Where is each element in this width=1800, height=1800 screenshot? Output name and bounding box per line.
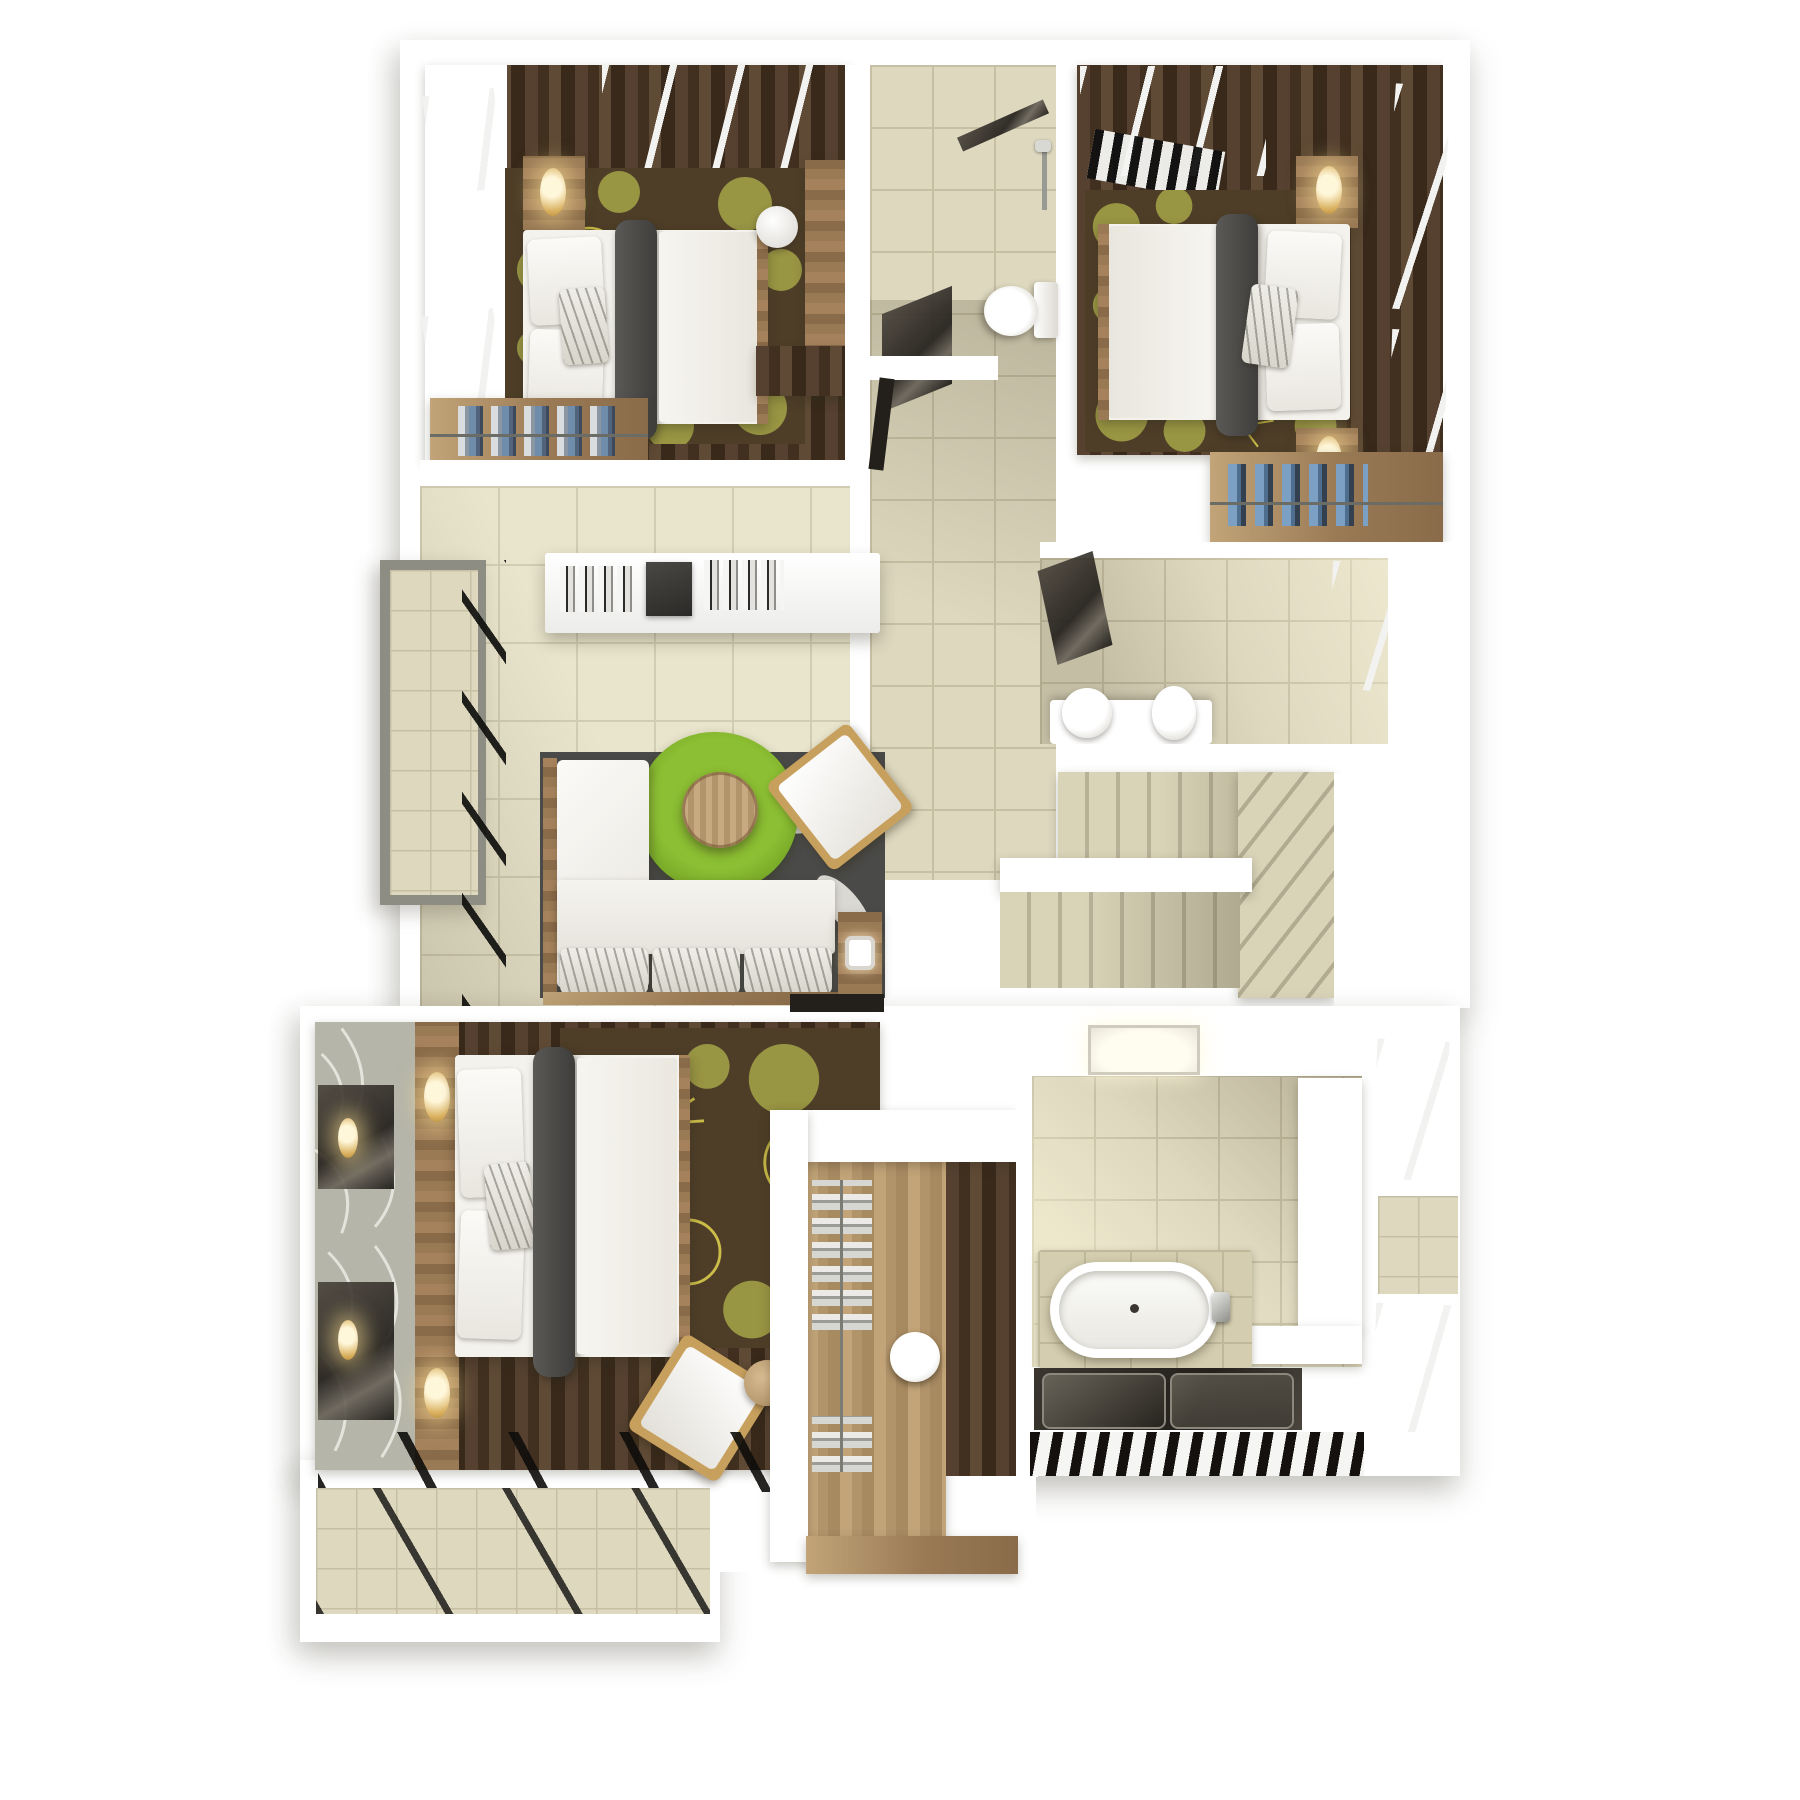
bathroom-top-wall (870, 356, 998, 380)
window-icon (1327, 561, 1392, 692)
tub-drain (1130, 1304, 1139, 1313)
round-stool (756, 206, 798, 248)
duvet (659, 232, 757, 422)
bed-top-left (523, 230, 768, 424)
sofa-seats (557, 880, 835, 954)
hanging-clothes (458, 406, 618, 456)
shower-glass-floor (1034, 1368, 1302, 1430)
wall (1056, 744, 1470, 774)
stair-winders (1238, 772, 1334, 998)
closet-wall-left (770, 1110, 808, 1562)
window-niche-icon (1088, 1025, 1200, 1075)
basin-icon (890, 1332, 940, 1382)
terrace-floor (316, 1488, 710, 1614)
window-icon (1388, 329, 1448, 459)
coffee-table (682, 772, 758, 848)
window-bay-tile (1378, 1196, 1458, 1294)
wardrobe-top-right (1210, 452, 1443, 542)
closet-rail (840, 1180, 843, 1472)
low-board (756, 346, 848, 396)
lamp-icon (540, 168, 566, 216)
hanging-clothes (1228, 464, 1368, 526)
door-leaf-icon (790, 994, 884, 1012)
decor-box (646, 562, 692, 616)
toilet-icon (984, 286, 1038, 336)
closet-dark-floor (946, 1112, 1016, 1476)
bed-top-right (1098, 224, 1350, 420)
sofa-frame (543, 758, 557, 1004)
bathroom-top-floor (870, 65, 1056, 880)
lamp-icon (338, 1320, 358, 1360)
stair-flight-lower (1000, 892, 1240, 988)
skylight-icon (602, 65, 848, 171)
wall (420, 460, 850, 486)
book-row (704, 560, 784, 610)
sofa-cushion (744, 948, 832, 994)
basin-icon (1062, 688, 1112, 738)
master-bed (455, 1055, 690, 1357)
lamp-icon (424, 1072, 450, 1122)
accent-pillow (558, 286, 609, 365)
shower-head-icon (1042, 148, 1047, 210)
sofa-cushion (560, 948, 648, 994)
bathtub-icon (1050, 1262, 1218, 1358)
glass-tray (1170, 1373, 1294, 1429)
window-icon (1370, 1038, 1449, 1182)
wall (1334, 774, 1470, 1008)
bed-frame-edge (679, 1055, 690, 1357)
closet-low-board (806, 1536, 1018, 1574)
floor-plan-render (0, 0, 1800, 1800)
duvet (577, 1058, 677, 1354)
stair-handrail-wall (1000, 858, 1252, 892)
window-icon (1372, 1303, 1452, 1434)
bath-shelf (1250, 1326, 1362, 1364)
window-icon (422, 88, 506, 196)
shower-head-icon (1035, 140, 1051, 152)
wardrobe-top-left (430, 398, 648, 464)
louver-grille-icon (1030, 1432, 1364, 1476)
bed-frame-edge (1098, 224, 1109, 420)
lamp-icon (338, 1118, 358, 1158)
table-lamp-icon (845, 936, 875, 970)
bath-shelf (1298, 1078, 1362, 1330)
glass-wall-frames-icon (462, 560, 506, 1006)
tub-faucet-icon (1212, 1292, 1230, 1322)
accent-pillow (483, 1161, 536, 1251)
book-row (560, 566, 632, 612)
duvet (1109, 226, 1215, 418)
lamp-icon (424, 1368, 450, 1418)
toilet-icon (1152, 686, 1196, 740)
sofa-cushion (652, 948, 740, 994)
bed-runner (533, 1047, 575, 1377)
glass-tray (1042, 1373, 1166, 1429)
lamp-icon (1316, 166, 1342, 214)
